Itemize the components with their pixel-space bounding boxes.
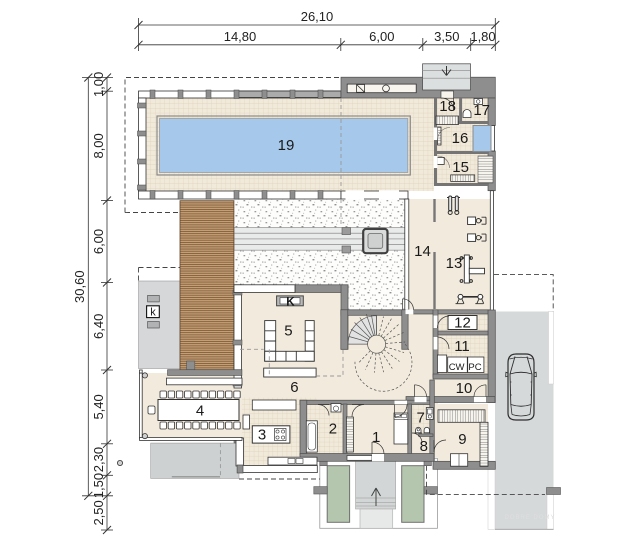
svg-text:6: 6 [290, 379, 298, 396]
svg-text:7: 7 [417, 410, 425, 427]
svg-text:4: 4 [196, 403, 204, 420]
svg-text:2,50: 2,50 [91, 500, 106, 525]
svg-text:1,00: 1,00 [91, 72, 106, 97]
svg-text:DOBRE DOMY: DOBRE DOMY [504, 515, 555, 521]
svg-text:17: 17 [473, 102, 490, 119]
svg-text:8: 8 [420, 438, 428, 455]
svg-text:6,00: 6,00 [91, 229, 106, 254]
svg-text:K: K [286, 296, 295, 308]
svg-text:30,60: 30,60 [72, 270, 87, 303]
svg-text:10: 10 [456, 380, 473, 397]
svg-text:3: 3 [258, 427, 266, 444]
svg-text:12: 12 [454, 315, 471, 332]
svg-text:11: 11 [454, 338, 470, 355]
svg-text:2: 2 [329, 421, 337, 438]
svg-text:16: 16 [452, 130, 469, 147]
svg-text:k: k [150, 307, 156, 319]
svg-text:14: 14 [414, 243, 431, 260]
svg-text:1: 1 [372, 429, 380, 446]
svg-text:CW: CW [449, 362, 465, 373]
svg-text:19: 19 [278, 137, 295, 154]
svg-text:1,50: 1,50 [91, 473, 106, 498]
svg-text:PC: PC [468, 362, 481, 373]
svg-text:15: 15 [452, 159, 469, 176]
svg-text:26,10: 26,10 [301, 9, 334, 24]
svg-text:6,40: 6,40 [91, 314, 106, 339]
svg-text:13: 13 [446, 255, 463, 272]
svg-text:3,50: 3,50 [434, 29, 459, 44]
svg-text:6,00: 6,00 [369, 29, 394, 44]
svg-text:2,30: 2,30 [91, 447, 106, 472]
svg-text:1,80: 1,80 [470, 29, 495, 44]
svg-text:5,40: 5,40 [91, 394, 106, 419]
svg-text:18: 18 [439, 98, 456, 115]
svg-text:14,80: 14,80 [224, 29, 257, 44]
svg-text:8,00: 8,00 [91, 133, 106, 158]
svg-text:5: 5 [284, 323, 292, 340]
svg-text:9: 9 [458, 431, 466, 448]
